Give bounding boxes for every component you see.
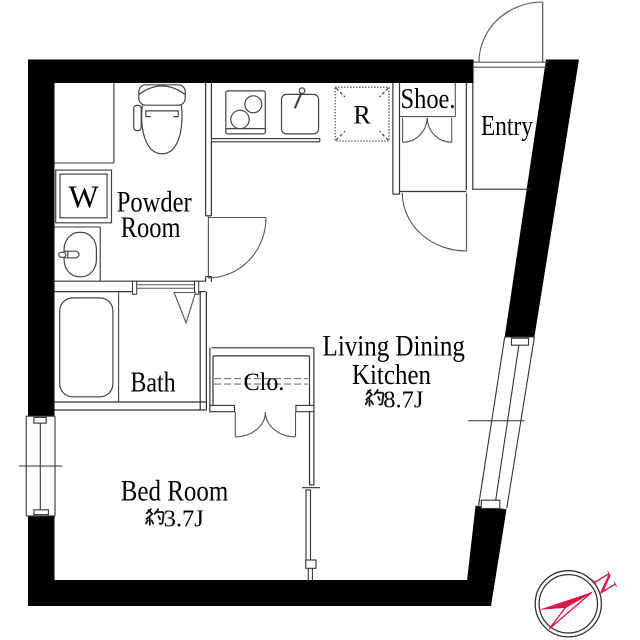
svg-text:W: W (68, 179, 99, 215)
svg-text:R: R (353, 101, 371, 130)
svg-text:Shoe.: Shoe. (400, 82, 455, 114)
svg-text:3.7J: 3.7J (164, 506, 205, 533)
svg-text:Living Dining: Living Dining (323, 330, 466, 362)
svg-text:Entry: Entry (481, 110, 533, 142)
svg-text:Room: Room (121, 211, 181, 244)
svg-text:8.7J: 8.7J (383, 387, 424, 414)
svg-text:Bed Room: Bed Room (121, 473, 229, 507)
svg-text:Bath: Bath (130, 365, 175, 398)
svg-text:Clo.: Clo. (244, 368, 285, 396)
